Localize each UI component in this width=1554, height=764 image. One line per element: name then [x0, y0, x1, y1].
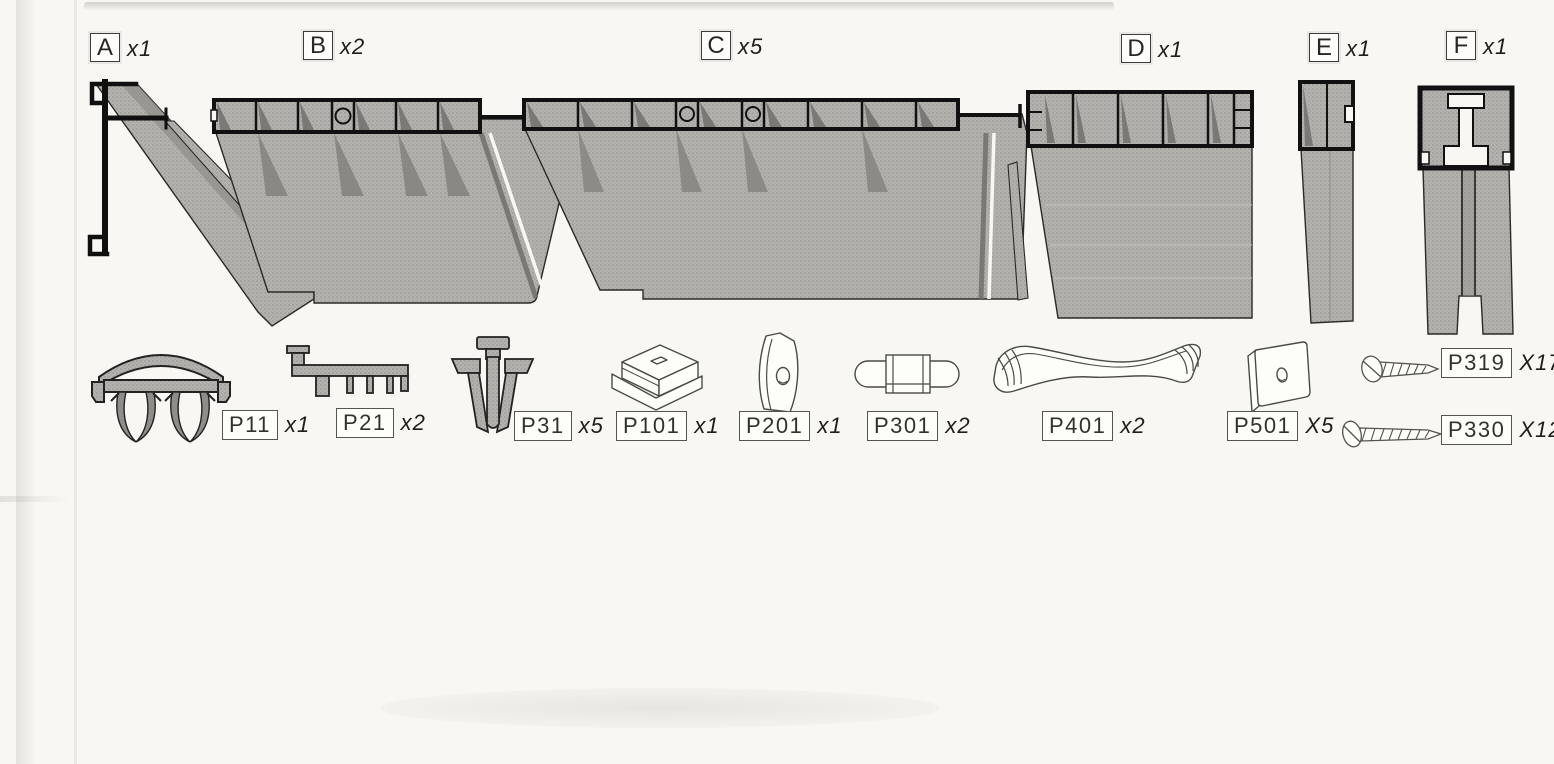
- paper-crease-mid: [0, 496, 70, 502]
- scanner-edge-shadow-top: [84, 2, 1114, 11]
- hardware-p101-code: P101: [616, 411, 687, 441]
- hardware-p101-label: P101 x1: [616, 411, 720, 441]
- hardware-p319-count: X17: [1519, 350, 1554, 376]
- paper-crease-left: [16, 0, 36, 764]
- paper-fold-line: [74, 0, 77, 764]
- hardware-p501-code: P501: [1227, 411, 1298, 441]
- hardware-p201-label: P201 x1: [739, 411, 843, 441]
- hardware-p21-count: x2: [401, 410, 426, 436]
- profile-d-label: D x1: [1121, 34, 1183, 63]
- profile-e-count: x1: [1346, 33, 1371, 62]
- hardware-p319-drawing: [1355, 345, 1445, 393]
- hardware-p11-label: P11 x1: [222, 410, 310, 440]
- profile-f-id: F: [1446, 31, 1476, 60]
- profile-b-id: B: [303, 31, 333, 60]
- hardware-p301-label: P301 x2: [867, 411, 971, 441]
- hardware-p21-label: P21 x2: [336, 408, 426, 438]
- profile-a-id: A: [90, 33, 120, 62]
- profile-d-count: x1: [1158, 34, 1183, 63]
- profile-c-drawing: [515, 95, 1040, 310]
- hardware-p101-drawing: [608, 338, 708, 413]
- hardware-p330-count: X12: [1519, 417, 1554, 443]
- hardware-p401-code: P401: [1042, 411, 1113, 441]
- profile-d-id: D: [1121, 34, 1151, 63]
- profile-e-label: E x1: [1309, 33, 1371, 62]
- profile-a-count: x1: [127, 33, 152, 62]
- scan-streaks-bottom: [380, 688, 940, 728]
- hardware-p301-drawing: [848, 346, 968, 396]
- hardware-p201-drawing: [745, 328, 815, 418]
- hardware-p319-label: P319 X17: [1441, 348, 1554, 378]
- profile-c-count: x5: [738, 31, 763, 60]
- hardware-p501-count: X5: [1305, 413, 1334, 439]
- profile-c-id: C: [701, 31, 731, 60]
- hardware-p11-code: P11: [222, 410, 278, 440]
- hardware-p31-label: P31 x5: [514, 411, 604, 441]
- hardware-p21-drawing: [280, 340, 420, 402]
- profile-b-label: B x2: [303, 31, 365, 60]
- hardware-p301-code: P301: [867, 411, 938, 441]
- hardware-p201-count: x1: [817, 413, 842, 439]
- hardware-p301-count: x2: [945, 413, 970, 439]
- hardware-p21-code: P21: [336, 408, 394, 438]
- hardware-p201-code: P201: [739, 411, 810, 441]
- profile-c-label: C x5: [701, 31, 763, 60]
- profile-f-count: x1: [1483, 31, 1508, 60]
- parts-diagram-page: A x1 B x2 C x5 D x1 E x1 F x1: [0, 0, 1554, 764]
- profile-d-drawing: [1005, 85, 1265, 325]
- profile-a-label: A x1: [90, 33, 152, 62]
- hardware-p401-label: P401 x2: [1042, 411, 1146, 441]
- hardware-p330-label: P330 X12: [1441, 415, 1554, 445]
- profile-e-id: E: [1309, 33, 1339, 62]
- hardware-p330-code: P330: [1441, 415, 1512, 445]
- profile-e-drawing: [1293, 76, 1368, 328]
- profile-b-count: x2: [340, 31, 365, 60]
- hardware-p401-count: x2: [1120, 413, 1145, 439]
- hardware-p319-code: P319: [1441, 348, 1512, 378]
- profile-f-drawing: [1412, 82, 1522, 337]
- profile-f-label: F x1: [1446, 31, 1508, 60]
- hardware-p11-count: x1: [285, 412, 310, 438]
- hardware-p501-drawing: [1238, 332, 1318, 417]
- hardware-p401-drawing: [983, 330, 1213, 410]
- hardware-p11-drawing: [90, 328, 240, 453]
- hardware-p501-label: P501 X5: [1227, 411, 1334, 441]
- hardware-p330-drawing: [1335, 410, 1447, 460]
- hardware-p31-code: P31: [514, 411, 572, 441]
- hardware-p31-count: x5: [579, 413, 604, 439]
- hardware-p101-count: x1: [694, 413, 719, 439]
